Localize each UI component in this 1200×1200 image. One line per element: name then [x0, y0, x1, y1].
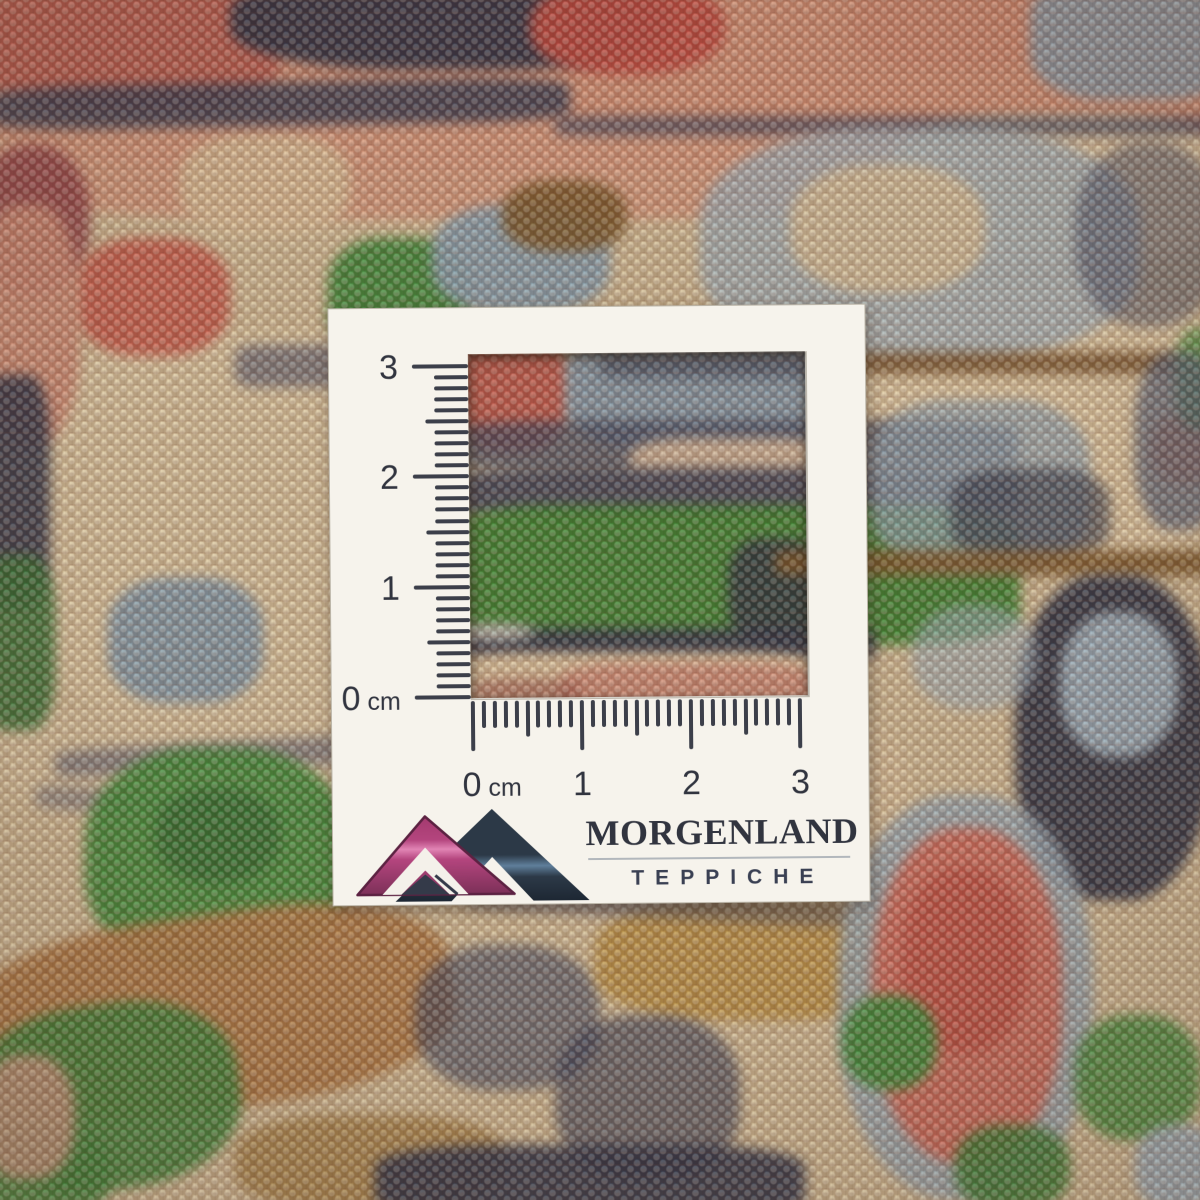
horizontal-ruler-label-2: 2 — [651, 764, 731, 803]
horizontal-ruler-tick — [569, 700, 573, 727]
horizontal-ruler-tick — [656, 699, 660, 726]
horizontal-ruler-tick — [678, 699, 682, 726]
horizontal-ruler-tick — [591, 700, 595, 727]
vertical-ruler-tick — [434, 375, 468, 379]
horizontal-ruler-tick — [580, 700, 584, 750]
carpet-patch — [1030, 0, 1200, 100]
vertical-ruler-tick — [435, 452, 469, 456]
carpet-patch — [75, 238, 230, 356]
vertical-ruler-tick — [415, 695, 471, 699]
carpet-patch — [1135, 352, 1200, 530]
carpet-patch — [502, 180, 627, 252]
carpet-patch — [108, 578, 263, 703]
horizontal-ruler-tick — [623, 700, 627, 727]
horizontal-ruler-tick — [471, 701, 475, 751]
horizontal-ruler-tick — [602, 700, 606, 727]
vertical-ruler-tick — [435, 519, 469, 523]
horizontal-ruler-tick — [765, 699, 769, 726]
horizontal-ruler-tick — [711, 699, 715, 726]
carpet-patch — [950, 468, 1110, 560]
carpet-patch — [180, 135, 350, 235]
vertical-ruler-tick — [435, 463, 469, 467]
horizontal-ruler — [473, 698, 800, 753]
horizontal-ruler-tick — [547, 700, 551, 727]
horizontal-ruler-tick — [645, 700, 649, 727]
vertical-ruler-label-3: 3 — [328, 348, 398, 389]
horizontal-ruler-tick — [525, 701, 529, 737]
vertical-ruler — [328, 366, 471, 698]
vertical-ruler-tick — [435, 541, 469, 545]
measurement-window-cutout — [468, 351, 810, 700]
horizontal-ruler-tick — [482, 701, 486, 728]
carpet-patch — [850, 352, 1180, 374]
vertical-ruler-tick — [434, 397, 468, 401]
measuring-card: 3 2 1 0cm 0cm 1 2 3 — [327, 304, 870, 907]
carpet-patch — [1075, 142, 1200, 327]
vertical-ruler-tick — [435, 441, 469, 445]
carpet-patch — [530, 0, 725, 75]
vertical-ruler-unit: cm — [367, 688, 401, 716]
carpet-patch — [842, 995, 937, 1090]
vertical-ruler-tick — [425, 419, 468, 423]
horizontal-ruler-tick — [536, 701, 540, 728]
vertical-ruler-tick — [436, 662, 470, 666]
carpet-patch — [850, 0, 1060, 70]
vertical-ruler-tick — [434, 430, 468, 434]
vertical-ruler-label-0: 0cm — [331, 679, 401, 723]
horizontal-ruler-tick — [722, 699, 726, 726]
horizontal-ruler-tick — [514, 701, 518, 728]
carpet-patch — [375, 1145, 805, 1200]
vertical-ruler-tick — [427, 640, 470, 644]
horizontal-ruler-tick — [667, 699, 671, 726]
horizontal-ruler-tick — [689, 699, 693, 749]
vertical-ruler-tick — [434, 408, 468, 412]
carpet-patch — [790, 165, 985, 293]
carpet-patch — [155, 788, 280, 883]
vertical-ruler-tick — [436, 563, 470, 567]
vertical-ruler-tick — [413, 474, 469, 478]
vertical-ruler-tick — [435, 508, 469, 512]
horizontal-ruler-tick — [613, 700, 617, 727]
card-panel-right — [805, 351, 869, 696]
horizontal-ruler-tick — [743, 699, 747, 735]
carpet-patch — [0, 1055, 75, 1180]
vertical-ruler-tick — [436, 596, 470, 600]
vertical-ruler-tick — [436, 607, 470, 611]
horizontal-ruler-tick — [558, 700, 562, 727]
horizontal-ruler-tick — [732, 699, 736, 726]
vertical-ruler-tick — [435, 486, 469, 490]
vertical-ruler-tick — [436, 618, 470, 622]
brand-subtitle: TEPPICHE — [572, 865, 872, 892]
vertical-ruler-tick — [435, 497, 469, 501]
photo-canvas: 3 2 1 0cm 0cm 1 2 3 — [0, 0, 1200, 1200]
vertical-ruler-tick — [434, 386, 468, 390]
carpet-patch — [1060, 612, 1178, 757]
vertical-ruler-tick — [436, 651, 470, 655]
card-panel-top — [327, 304, 865, 356]
horizontal-ruler-tick — [700, 699, 704, 726]
horizontal-ruler-tick — [504, 701, 508, 728]
vertical-ruler-tick — [436, 574, 470, 578]
brand-name: MORGENLAND — [572, 810, 872, 855]
horizontal-ruler-tick — [776, 698, 780, 725]
horizontal-ruler-tick — [787, 698, 791, 725]
horizontal-ruler-tick — [493, 701, 497, 728]
vertical-ruler-tick — [412, 364, 468, 368]
vertical-ruler-tick — [436, 552, 470, 556]
carpet-patch — [1135, 1125, 1200, 1200]
carpet-patch — [912, 605, 1037, 710]
vertical-ruler-tick — [426, 530, 469, 534]
horizontal-ruler-tick — [634, 700, 638, 736]
vertical-ruler-tick — [437, 673, 471, 677]
vertical-ruler-label-1: 1 — [330, 569, 400, 610]
vertical-ruler-tick — [436, 629, 470, 633]
vertical-ruler-label-2: 2 — [329, 458, 399, 499]
horizontal-ruler-tick — [754, 699, 758, 726]
carpet-patch — [0, 555, 55, 730]
carpet-patch — [955, 1125, 1070, 1200]
vertical-ruler-tick — [437, 684, 471, 688]
horizontal-ruler-tick — [798, 698, 802, 748]
vertical-ruler-tick — [414, 585, 470, 589]
horizontal-ruler-label-3: 3 — [760, 763, 840, 802]
carpet-patch — [1075, 1015, 1200, 1140]
